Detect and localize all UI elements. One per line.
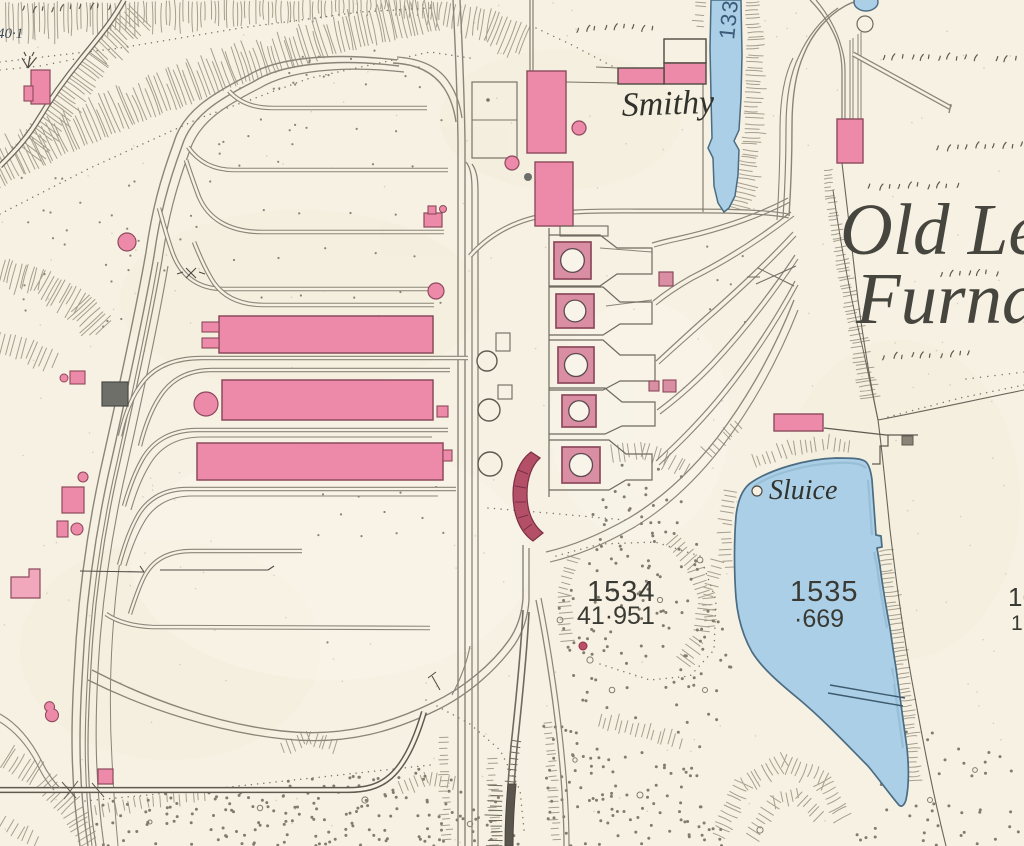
- svg-text:Smithy: Smithy: [621, 84, 716, 124]
- svg-text:Sluice: Sluice: [769, 475, 837, 506]
- svg-text:40·1: 40·1: [0, 26, 23, 42]
- svg-text:1·: 1·: [1011, 612, 1024, 635]
- svg-text:16: 16: [1008, 582, 1024, 612]
- svg-text:41·951: 41·951: [577, 602, 655, 630]
- svg-text:133: 133: [714, 0, 743, 41]
- svg-text:1535: 1535: [790, 576, 859, 608]
- svg-text:Furnac: Furnac: [855, 258, 1024, 339]
- svg-text:·669: ·669: [794, 605, 844, 633]
